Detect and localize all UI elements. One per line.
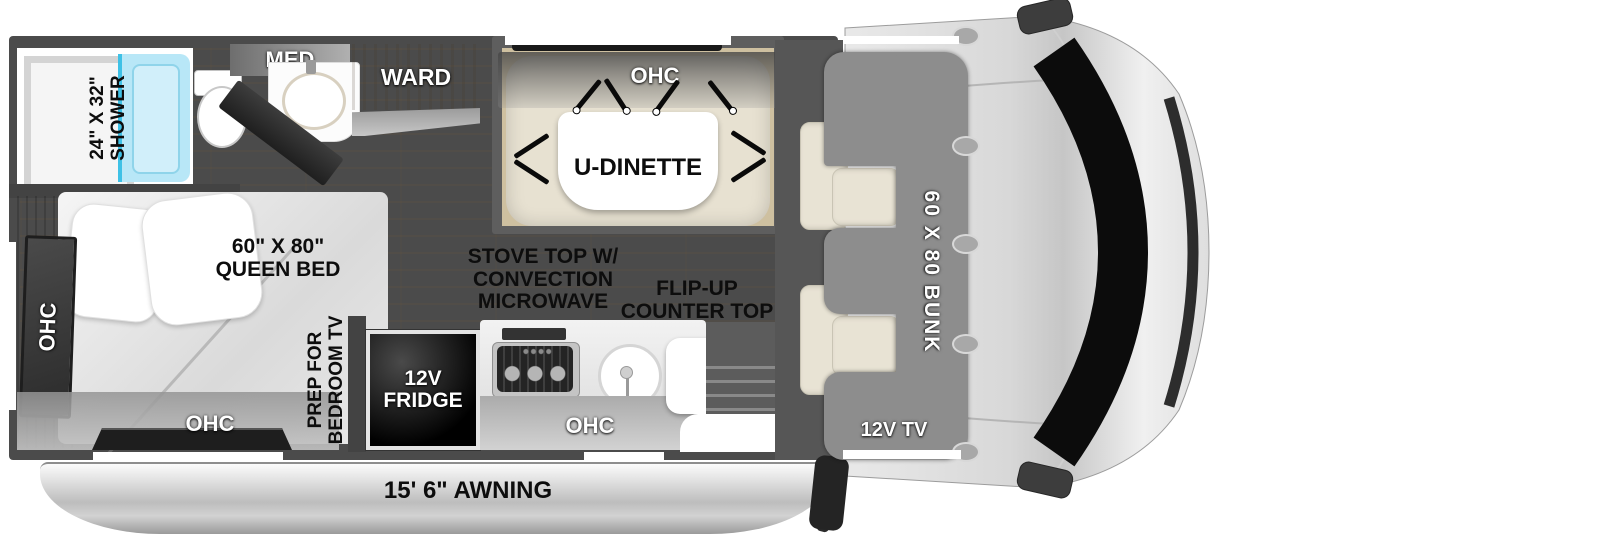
rivet (952, 234, 980, 254)
stove-label-line1: STOVE TOP W/ (438, 246, 648, 269)
u-dinette-label: U-DINETTE (574, 155, 702, 181)
bed-label-line2: QUEEN BED (178, 259, 378, 282)
stove-grate (497, 346, 573, 392)
bunk-tv-label: 12V TV (844, 420, 944, 446)
bed-label-line1: 60" X 80" (178, 236, 378, 259)
window-strip-top-cab (843, 36, 959, 44)
rv-floorplan: 15' 6" AWNING 24" X 32" SHOWER MED WARD … (0, 0, 1600, 554)
ward-label: WARD (381, 65, 451, 89)
window-strip-left (9, 242, 16, 410)
bedroom-rear-ohc-label: OHC (180, 412, 240, 436)
kitchen-faucet-knob (620, 366, 633, 379)
dinette-ohc-label: OHC (600, 64, 710, 88)
dinette-table: U-DINETTE (558, 112, 718, 210)
kitchen-divider-wall (348, 316, 366, 452)
bath-faucet (306, 60, 316, 74)
rivet (952, 334, 980, 354)
fridge-label-line2: FRIDGE (383, 390, 462, 412)
window-strip-top (505, 36, 731, 45)
fridge-label-line1: 12V (404, 368, 441, 390)
wardrobe: WARD (352, 44, 480, 110)
awning-label: 15' 6" AWNING (318, 478, 618, 504)
shower-label: 24" X 32" SHOWER (88, 53, 138, 183)
window-strip-bottom (584, 452, 664, 460)
bedroom-tv-prep-label: PREP FOR BEDROOM TV (306, 313, 352, 447)
bedroom-side-ohc-label: OHC (33, 247, 63, 408)
stove-vent (502, 328, 566, 340)
window-strip-bottom-cab (843, 450, 961, 459)
flip-label-line1: FLIP-UP (597, 278, 797, 301)
rivet (952, 136, 980, 156)
flip-up-counter-label: FLIP-UP COUNTER TOP (597, 278, 797, 324)
queen-bed-label: 60" X 80" QUEEN BED (178, 236, 378, 284)
shower-label-line1: 24" X 32" (88, 53, 109, 183)
prep-label-line1: PREP FOR (306, 313, 327, 447)
prep-label-line2: BEDROOM TV (327, 313, 348, 447)
kitchen-ohc-label: OHC (560, 414, 620, 438)
window-strip-bottom (93, 452, 283, 460)
bunk-label: 60 X 80 BUNK (911, 137, 951, 407)
fridge: 12V FRIDGE (366, 330, 480, 450)
shower-pan (132, 64, 180, 174)
shower-label-line2: SHOWER (109, 53, 130, 183)
